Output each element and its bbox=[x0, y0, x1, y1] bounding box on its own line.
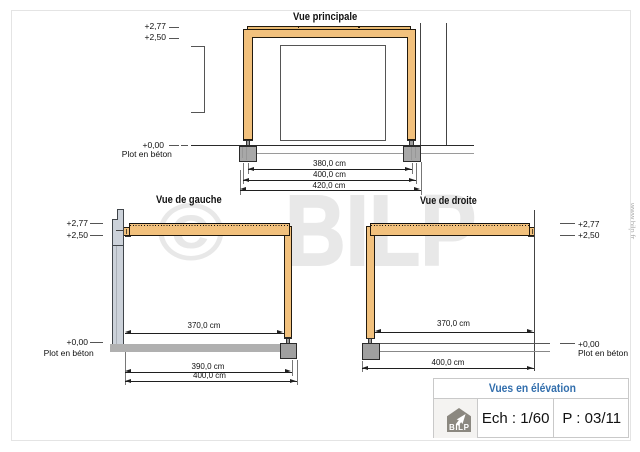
svg-text:BILP: BILP bbox=[448, 423, 469, 432]
